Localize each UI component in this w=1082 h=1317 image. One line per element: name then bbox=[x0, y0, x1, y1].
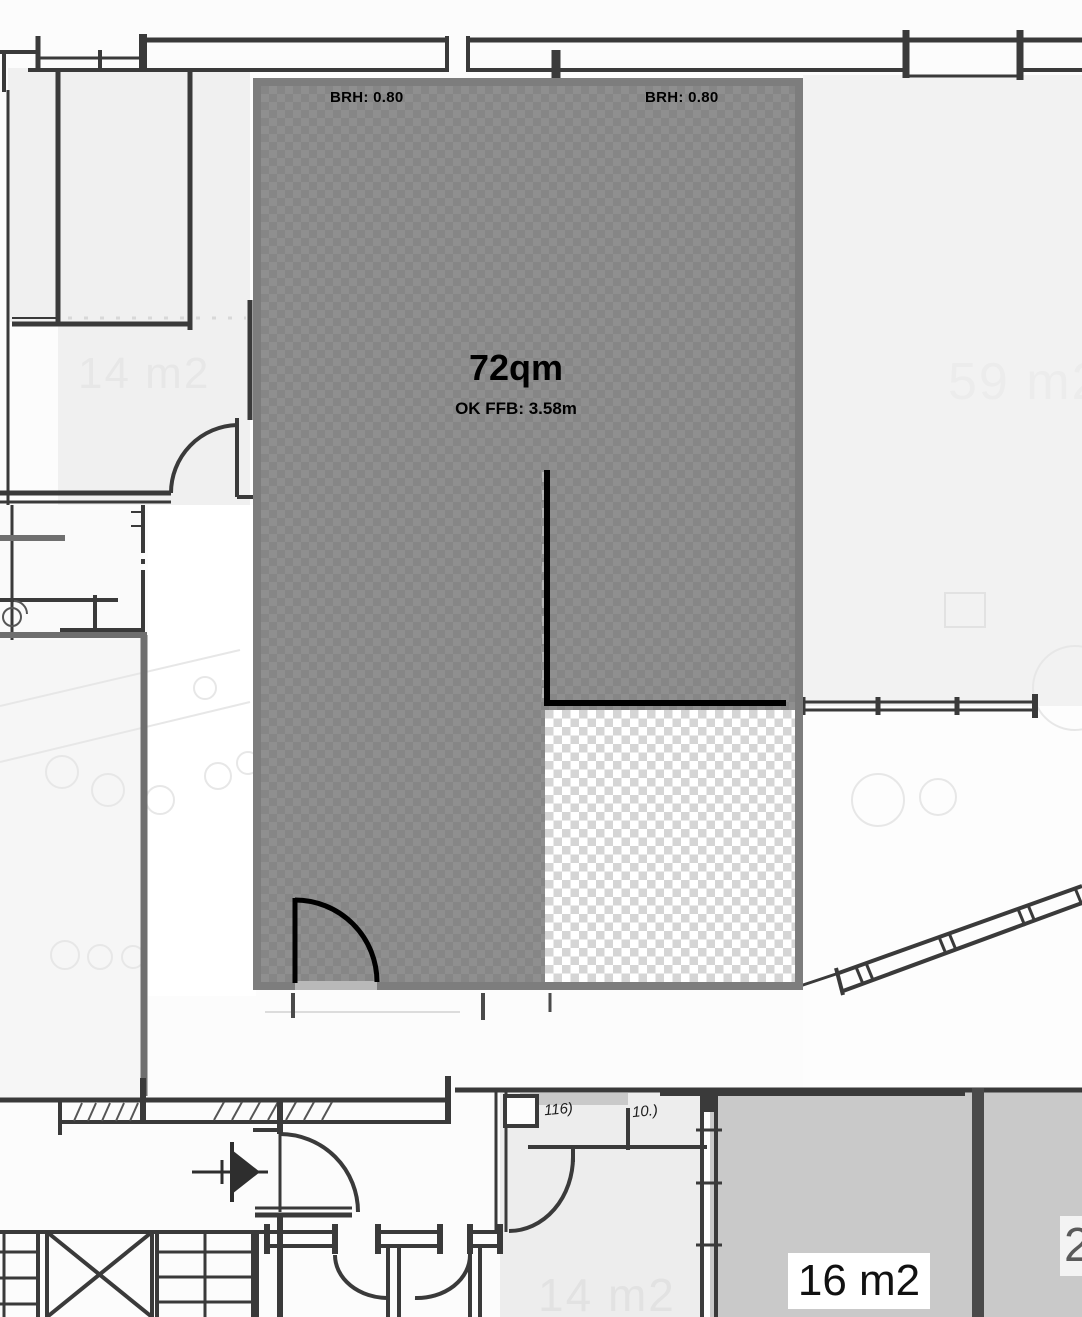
room-label-14-upper: 14 m2 bbox=[78, 352, 210, 396]
floorplan-canvas: BRH: 0.80 BRH: 0.80 72qm OK FFB: 3.58m 1… bbox=[0, 0, 1082, 1317]
room-label-partial-2: 2 bbox=[1060, 1216, 1082, 1276]
unit-ffb-label: OK FFB: 3.58m bbox=[455, 400, 577, 417]
brh-label-left: BRH: 0.80 bbox=[330, 90, 404, 105]
room-label-14-lower: 14 m2 bbox=[538, 1272, 676, 1317]
handwritten-note-2: 10.) bbox=[631, 1103, 658, 1120]
highlight-annotations bbox=[0, 0, 1082, 1317]
unit-area-label: 72qm bbox=[469, 350, 563, 386]
unit-door-swing bbox=[295, 900, 377, 982]
partition-line bbox=[547, 470, 786, 703]
brh-label-right: BRH: 0.80 bbox=[645, 90, 719, 105]
handwritten-note-1: 116) bbox=[543, 1101, 573, 1118]
room-label-16: 16 m2 bbox=[788, 1253, 930, 1309]
room-label-59: 59 m2 bbox=[948, 356, 1082, 408]
